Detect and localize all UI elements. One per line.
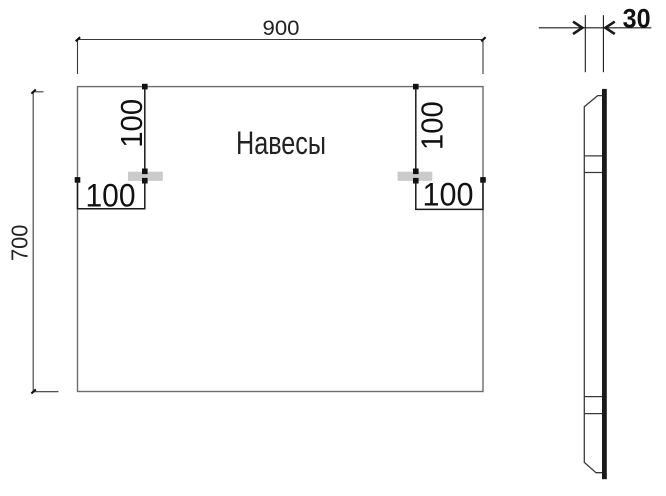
svg-text:100: 100 bbox=[423, 177, 474, 213]
svg-text:100: 100 bbox=[114, 99, 149, 148]
svg-text:30: 30 bbox=[623, 3, 651, 33]
svg-text:700: 700 bbox=[6, 225, 32, 261]
svg-text:Навесы: Навесы bbox=[236, 125, 326, 161]
svg-text:900: 900 bbox=[263, 16, 300, 40]
svg-text:100: 100 bbox=[415, 101, 450, 150]
svg-text:100: 100 bbox=[86, 178, 136, 214]
